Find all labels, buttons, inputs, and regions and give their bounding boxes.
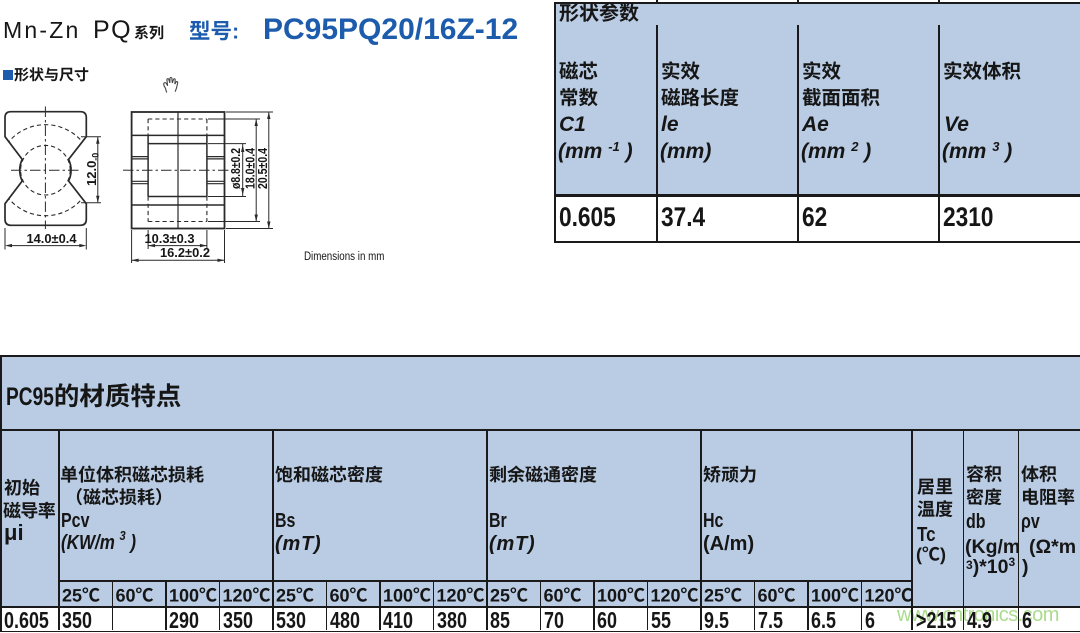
svg-text:14.0±0.4: 14.0±0.4 [27, 232, 77, 246]
svg-text:ø8.8±0.2: ø8.8±0.2 [228, 148, 243, 189]
svg-text:12.0-0: 12.0-0 [84, 153, 101, 186]
svg-text:16.2±0.2: 16.2±0.2 [160, 246, 210, 260]
svg-text:10.3±0.3: 10.3±0.3 [145, 232, 195, 246]
svg-text:20.5±0.4: 20.5±0.4 [255, 147, 270, 189]
